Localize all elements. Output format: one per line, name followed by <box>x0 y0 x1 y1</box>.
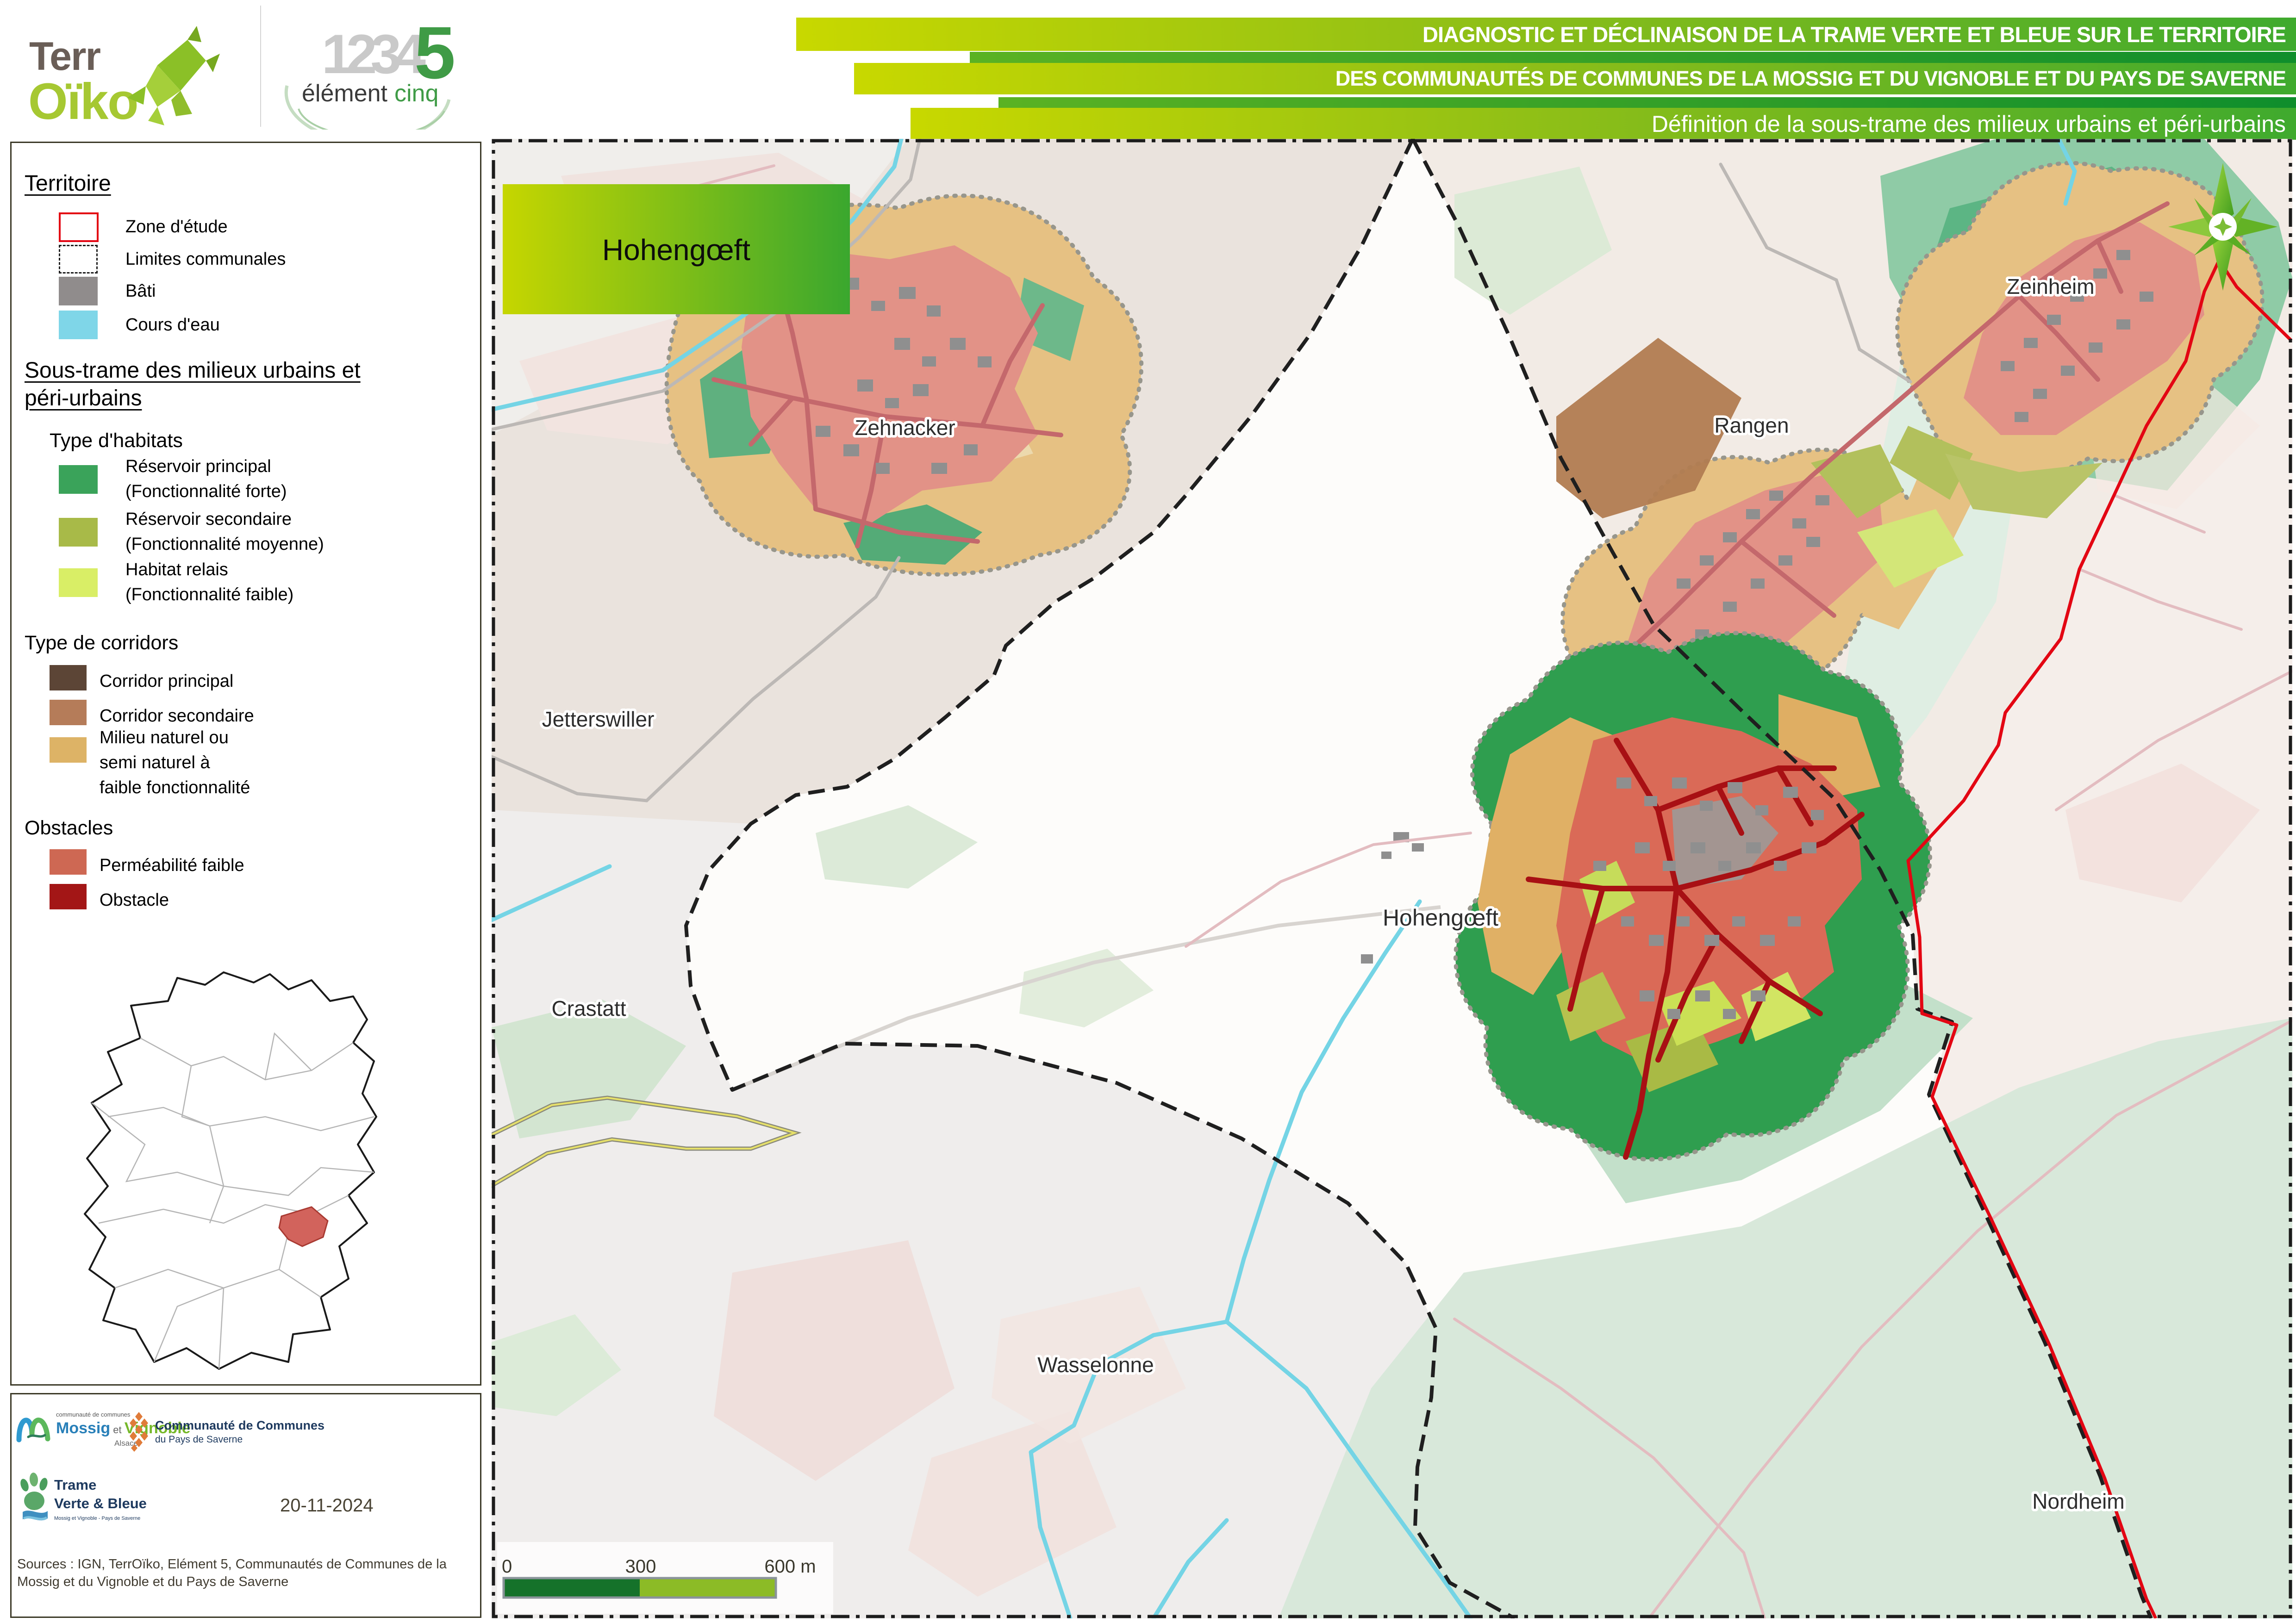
element5-cinq: cinq <box>394 80 438 107</box>
footer-panel: communauté de communes Mossig et Vignobl… <box>10 1393 481 1618</box>
pays-saverne-icon <box>128 1412 150 1453</box>
legend-soustrame-title-2: péri-urbains <box>25 386 142 411</box>
map-title-box: Hohengœft <box>503 184 850 314</box>
swatch-corridor-principal <box>50 665 87 690</box>
swatch-obstacle <box>50 884 87 909</box>
label-line: Réservoir secondaire <box>125 507 324 532</box>
legend-territoire-title: Territoire <box>25 171 111 196</box>
map-frame: Zehnacker Zeinheim Rangen Jetterswiller … <box>492 139 2292 1618</box>
locator-inset-map <box>71 964 390 1376</box>
label-zeinheim: Zeinheim <box>2007 274 2094 298</box>
label-line: semi naturel à <box>100 750 250 775</box>
label-hohengoeft: Hohengœft <box>1383 905 1498 931</box>
legend-corridor-secondaire-label: Corridor secondaire <box>100 703 254 728</box>
title-banner-2-text: DES COMMUNAUTÉS DE COMMUNES DE LA MOSSIG… <box>1335 67 2286 91</box>
label-line: Réservoir principal <box>125 454 287 479</box>
scale-start: 0 <box>502 1556 512 1577</box>
scale-segment-light <box>640 1579 775 1597</box>
legend-habitat-relais-label: Habitat relais (Fonctionnalité faible) <box>125 557 293 607</box>
scale-middle: 300 <box>625 1556 656 1577</box>
label-line: (Fonctionnalité faible) <box>125 582 293 607</box>
legend-bati-label: Bâti <box>125 279 156 304</box>
swatch-habitat-relais <box>59 568 98 597</box>
legend-limites-label: Limites communales <box>125 247 286 272</box>
label-jetterswiller: Jetterswiller <box>542 707 655 731</box>
saverne-logo-line1: Communauté de Communes <box>155 1418 324 1433</box>
legend-cours-eau-label: Cours d'eau <box>125 312 220 337</box>
title-banner-1: DIAGNOSTIC ET DÉCLINAISON DE LA TRAME VE… <box>796 18 2296 51</box>
legend-panel: Territoire Zone d'étude Limites communal… <box>10 142 481 1386</box>
mossig-word: Mossig <box>56 1419 110 1437</box>
legend-corridors-title: Type de corridors <box>25 632 178 654</box>
tvb-logo-line1: Trame <box>54 1477 96 1493</box>
element5-word: élément <box>302 80 387 107</box>
label-crastatt: Crastatt <box>551 996 626 1020</box>
legend-milieu-naturel-label: Milieu naturel ou semi naturel à faible … <box>100 725 250 800</box>
label-zehnacker: Zehnacker <box>855 416 955 440</box>
label-rangen: Rangen <box>1714 413 1789 437</box>
sources-text: Sources : IGN, TerrOïko, Elément 5, Comm… <box>17 1555 452 1591</box>
tvb-logo-line2: Verte & Bleue <box>54 1495 147 1512</box>
mossig-vignoble-icon <box>15 1406 53 1443</box>
frog-icon <box>102 21 222 128</box>
legend-obstacle-label: Obstacle <box>100 888 169 913</box>
legend-corridor-principal-label: Corridor principal <box>100 669 233 694</box>
label-line: Milieu naturel ou <box>100 725 250 750</box>
inset-region-outline <box>85 972 376 1369</box>
map-title-text: Hohengœft <box>602 233 750 267</box>
scale-bar: 0 300 600 m <box>497 1542 833 1614</box>
map-date: 20-11-2024 <box>280 1495 374 1516</box>
scale-segment-dark <box>505 1579 640 1597</box>
swatch-reservoir-secondaire <box>59 518 98 547</box>
legend-reservoir-secondaire-label: Réservoir secondaire (Fonctionnalité moy… <box>125 507 324 557</box>
legend-obstacles-title: Obstacles <box>25 817 113 839</box>
legend-soustrame-title-1: Sous-trame des milieux urbains et <box>25 358 361 383</box>
label-line: faible fonctionnalité <box>100 775 250 800</box>
title-banner-3-text: Définition de la sous-trame des milieux … <box>1652 111 2286 137</box>
saverne-logo-line2: du Pays de Saverne <box>155 1434 243 1445</box>
mossig-et: et <box>110 1424 125 1436</box>
swatch-bati <box>59 277 98 305</box>
label-line: Habitat relais <box>125 557 293 582</box>
swatch-zone-etude <box>59 212 99 242</box>
tvb-paw-icon <box>19 1472 50 1527</box>
mossig-logo-small: communauté de communes <box>56 1411 130 1418</box>
legend-reservoir-principal-label: Réservoir principal (Fonctionnalité fort… <box>125 454 287 504</box>
title-banner-1-text: DIAGNOSTIC ET DÉCLINAISON DE LA TRAME VE… <box>1423 22 2286 47</box>
map-sheet: Terr Oïko 1234 5 élément cinq DIAGNOSTIC… <box>0 0 2296 1623</box>
swatch-corridor-secondaire <box>50 700 87 725</box>
legend-zone-etude-label: Zone d'étude <box>125 214 228 239</box>
swatch-milieu-naturel <box>50 737 87 763</box>
label-line: (Fonctionnalité forte) <box>125 479 287 504</box>
map-canvas: Zehnacker Zeinheim Rangen Jetterswiller … <box>492 139 2292 1618</box>
scale-end: 600 m <box>764 1556 816 1577</box>
swatch-cours-eau <box>59 311 98 339</box>
title-banner-3: Définition de la sous-trame des milieux … <box>911 108 2296 140</box>
swatch-reservoir-principal <box>59 465 98 494</box>
label-nordheim: Nordheim <box>2032 1489 2124 1513</box>
label-wasselonne: Wasselonne <box>1037 1353 1154 1377</box>
label-line: (Fonctionnalité moyenne) <box>125 532 324 557</box>
legend-habitats-title: Type d'habitats <box>50 429 183 452</box>
header-divider <box>260 6 261 127</box>
swatch-permeabilite-faible <box>50 849 87 875</box>
element5-logo: 1234 5 élément cinq <box>273 14 486 130</box>
element5-numbers: 1234 <box>322 22 419 86</box>
terroiko-logo: Terr Oïko <box>25 13 248 129</box>
legend-permeabilite-label: Perméabilité faible <box>100 853 244 878</box>
title-banner-2: DES COMMUNAUTÉS DE COMMUNES DE LA MOSSIG… <box>854 63 2296 94</box>
swatch-limites-communales <box>59 245 98 274</box>
tvb-logo-subtitle: Mossig et Vignoble - Pays de Saverne <box>54 1516 140 1521</box>
